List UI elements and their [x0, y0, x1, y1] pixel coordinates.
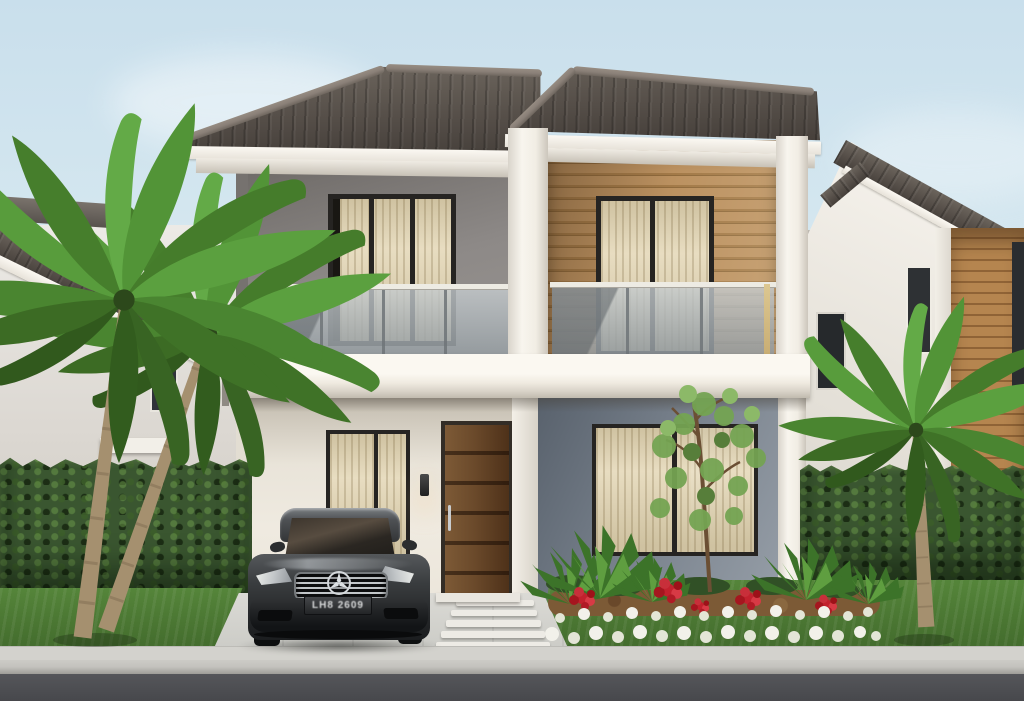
palm-tree-left — [0, 101, 396, 639]
palm-shadow — [53, 633, 137, 647]
palm-shadow — [894, 634, 954, 646]
palm-trees — [0, 0, 1024, 701]
palm-tree-right — [778, 295, 1024, 628]
scene-house-render: LH8 2609 — [0, 0, 1024, 701]
